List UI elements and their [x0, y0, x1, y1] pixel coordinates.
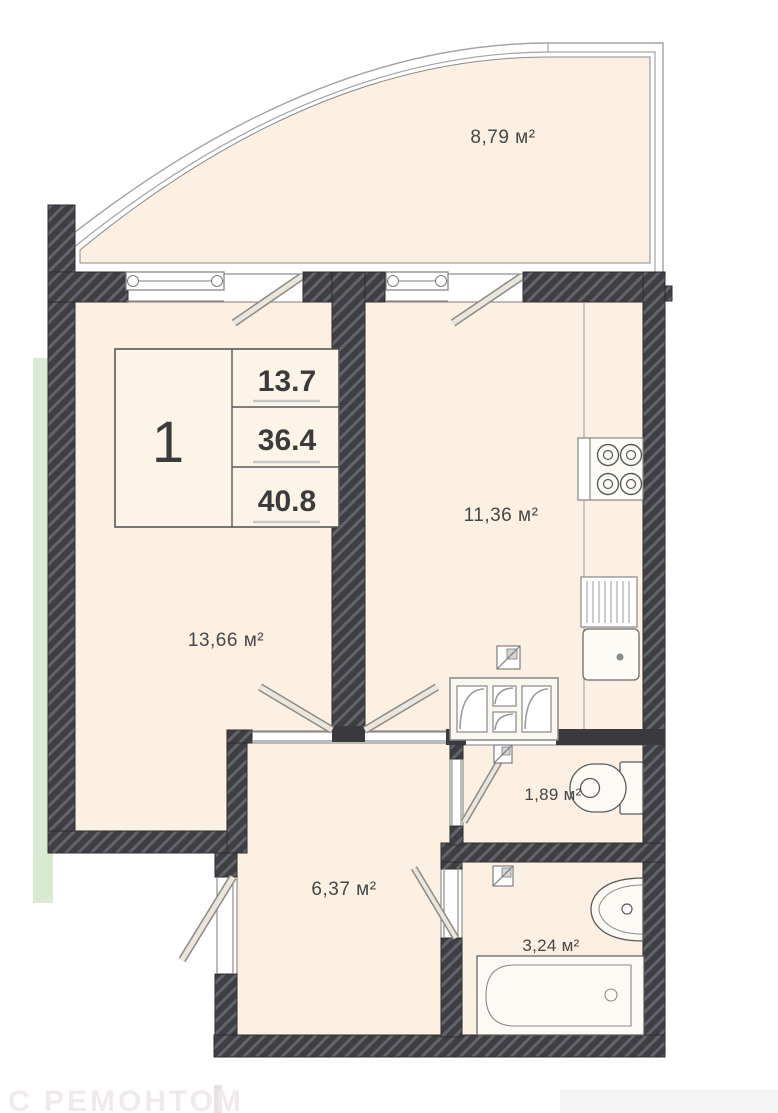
hall-left-wall-mid	[215, 853, 237, 877]
apartment-stamp: 1 13.7 36.4 40.8	[115, 349, 339, 527]
vent-grille-kitchen-icon	[497, 646, 520, 669]
hall-left-wall-top	[227, 730, 252, 743]
stamp-living-area: 13.7	[258, 365, 316, 398]
stamp-total-area: 40.8	[258, 485, 316, 518]
wc-left-wall-lower	[450, 826, 463, 845]
living-bottom-wall	[48, 831, 246, 853]
vent-grille-bathroom-icon	[493, 866, 513, 886]
living-area-label: 13,66 м²	[188, 630, 264, 651]
watermark-text: С РЕМОНТОМ	[8, 1085, 244, 1113]
hall-left-wall-upper	[227, 743, 247, 853]
wc-left-wall-stub	[450, 743, 463, 759]
top-wall-left	[48, 272, 128, 302]
floor-plan: 1 13.7 36.4 40.8 8,79 м² 13,66 м² 11,36 …	[0, 0, 778, 1113]
center-wall-cap	[332, 726, 365, 742]
dish-drainer-icon	[581, 577, 637, 627]
vent-grille-wc-icon	[494, 745, 512, 763]
bath-left-wall	[441, 938, 462, 1037]
kitchen-window	[386, 272, 448, 290]
bottom-wall	[214, 1035, 665, 1057]
bathtub-icon	[477, 956, 644, 1035]
balcony	[60, 43, 663, 277]
bathroom-area-label: 3,24 м²	[522, 936, 579, 955]
kitchen-sink-icon	[583, 629, 639, 680]
footer-band	[560, 1090, 778, 1113]
stove-icon	[578, 438, 643, 500]
right-wall	[643, 272, 665, 1057]
ventilation-shaft	[450, 678, 558, 740]
right-wall-notch	[665, 286, 672, 301]
wc-area-label: 1,89 м²	[524, 785, 581, 804]
living-room-window	[126, 272, 224, 290]
kitchen-wc-wall	[556, 729, 665, 745]
hallway-area-label: 6,37 м²	[311, 879, 376, 900]
stamp-room-count: 1	[152, 410, 184, 475]
stamp-apartment-area: 36.4	[258, 424, 317, 457]
wc-bath-wall	[441, 843, 665, 862]
entrance-door-leaf	[182, 877, 233, 960]
balcony-area-label: 8,79 м²	[470, 127, 535, 148]
balcony-floor	[80, 57, 650, 263]
bath-left-wall-stub	[441, 862, 462, 869]
kitchen-area-label: 11,36 м²	[464, 505, 539, 526]
floor-plan-canvas: 1 13.7 36.4 40.8 8,79 м² 13,66 м² 11,36 …	[0, 0, 778, 1113]
